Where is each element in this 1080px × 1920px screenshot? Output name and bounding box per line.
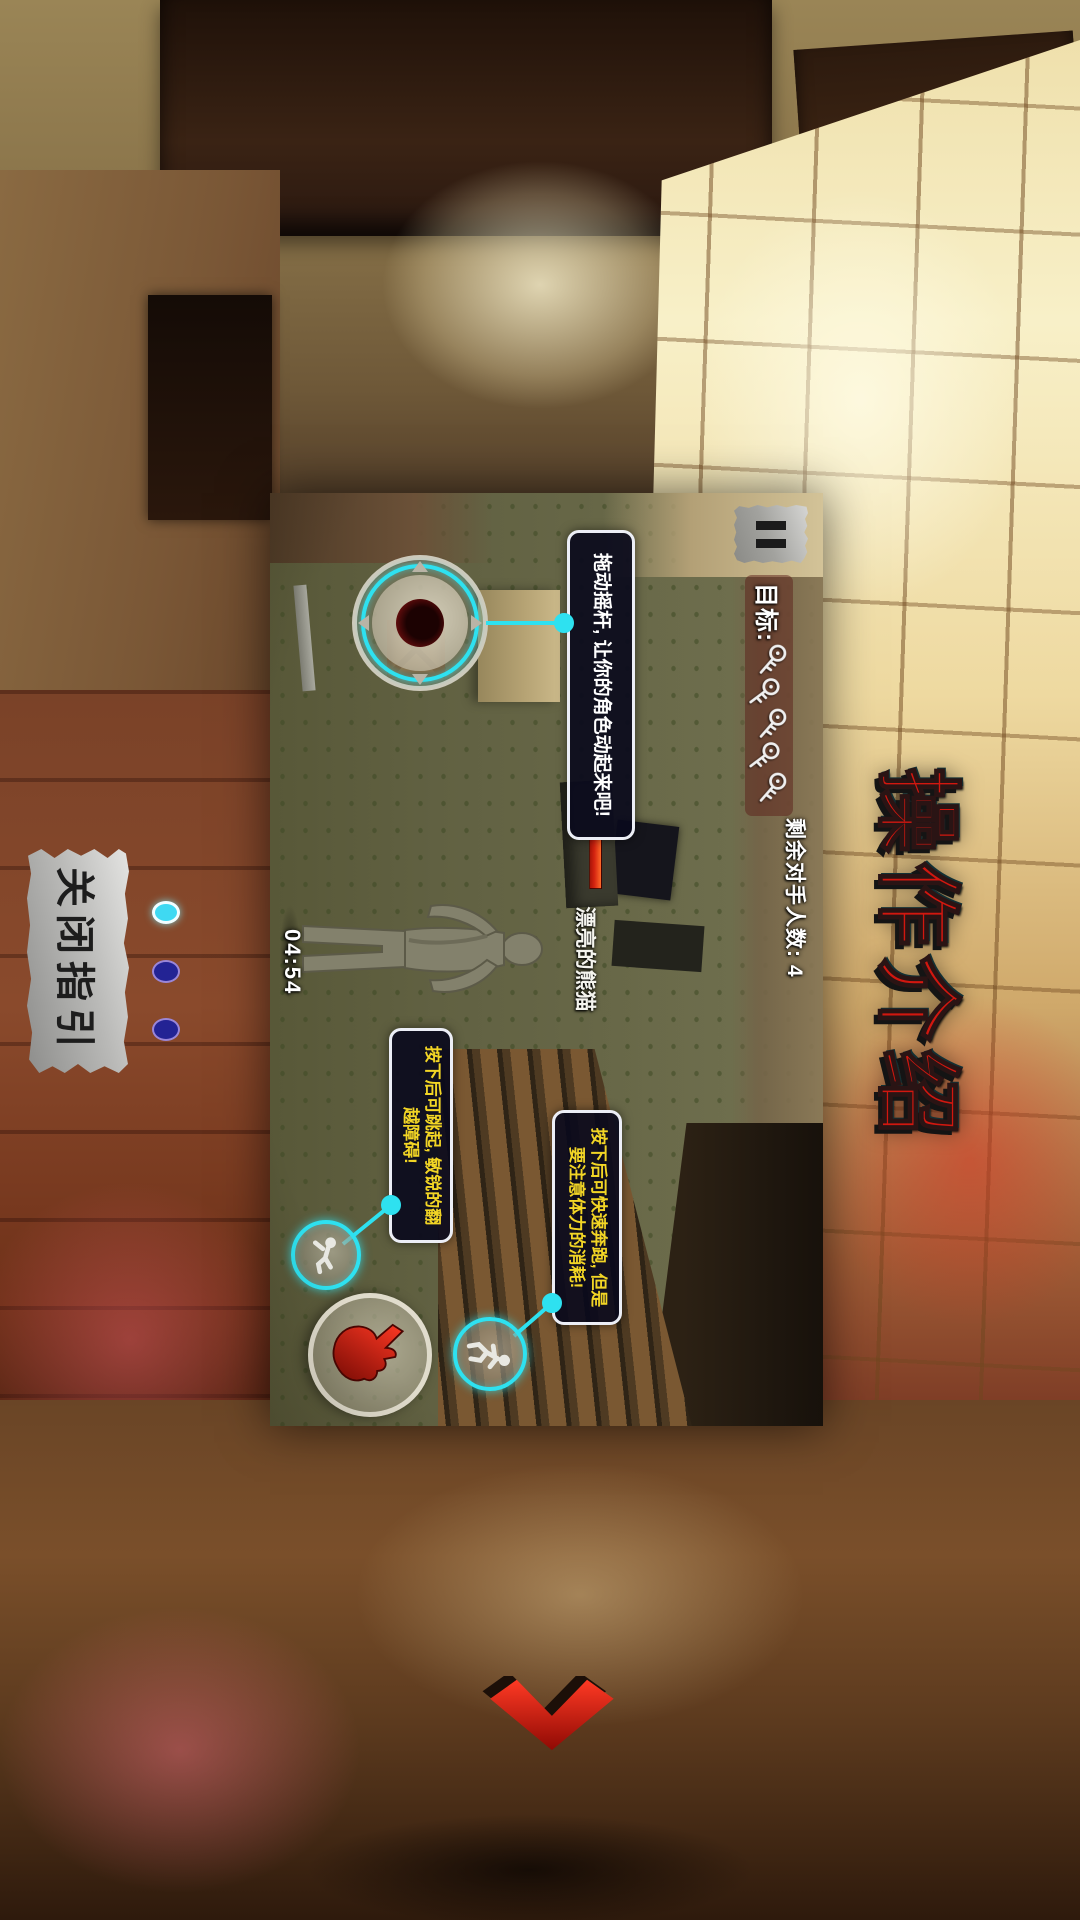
- pager-dot[interactable]: [152, 1018, 180, 1041]
- gameplay-landscape-frame: 目标:: [270, 493, 823, 1426]
- next-page-chevron[interactable]: [477, 1676, 623, 1752]
- floor-shadow: [250, 1800, 810, 1920]
- close-guide-button[interactable]: 关闭指引: [27, 849, 129, 1073]
- left-wall-doorway: [148, 295, 272, 520]
- screenshot-vignette: [270, 493, 823, 1426]
- tutorial-title: 操作介绍: [863, 745, 988, 1165]
- gameplay-screenshot: 目标:: [270, 493, 823, 1426]
- pager-dot[interactable]: [152, 960, 180, 983]
- pager-dot[interactable]: [152, 901, 180, 924]
- game-tutorial-screen: 目标:: [0, 0, 1080, 1920]
